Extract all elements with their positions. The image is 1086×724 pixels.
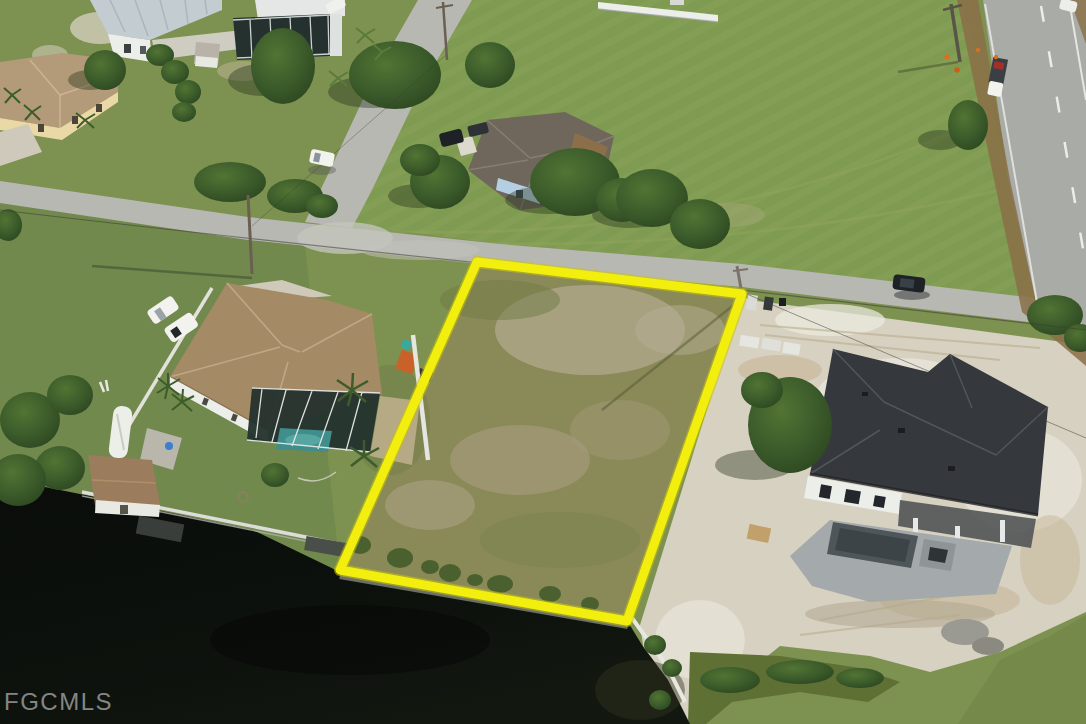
- debris-pile: [972, 637, 1004, 655]
- roof-vent: [862, 392, 868, 396]
- roof-vent: [898, 428, 905, 433]
- suv-roof: [899, 278, 914, 289]
- car-shadow: [308, 165, 336, 175]
- water-shadow: [210, 605, 490, 675]
- worker: [944, 54, 950, 60]
- blue-chair: [165, 442, 173, 450]
- window: [96, 104, 102, 112]
- bare-patch: [570, 400, 670, 460]
- cage-end-wall: [330, 14, 342, 56]
- traffic-cone: [994, 55, 998, 59]
- shed-wall: [195, 56, 218, 68]
- truck-cab: [987, 81, 1003, 97]
- lanai-column: [1000, 520, 1005, 542]
- aerial-scene: [0, 0, 1086, 724]
- window-opening: [873, 495, 886, 508]
- rv-roof: [670, 0, 684, 5]
- mailbox: [779, 298, 786, 306]
- window: [38, 124, 44, 132]
- car-shadow: [894, 290, 930, 300]
- window: [72, 116, 78, 124]
- aerial-listing-photo: FGCMLS: [0, 0, 1086, 724]
- bare-patch: [385, 480, 475, 530]
- roof-vent: [948, 466, 955, 471]
- bare-patch: [450, 425, 590, 495]
- traffic-cone: [976, 48, 980, 52]
- shed-door: [120, 505, 128, 514]
- window-opening: [819, 484, 832, 499]
- scrub-patch: [480, 512, 640, 568]
- mls-watermark: FGCMLS: [4, 688, 113, 716]
- window-opening: [844, 489, 861, 504]
- worker: [954, 67, 960, 73]
- door: [124, 44, 131, 53]
- window: [140, 46, 146, 54]
- trash-bin-white: [746, 294, 758, 310]
